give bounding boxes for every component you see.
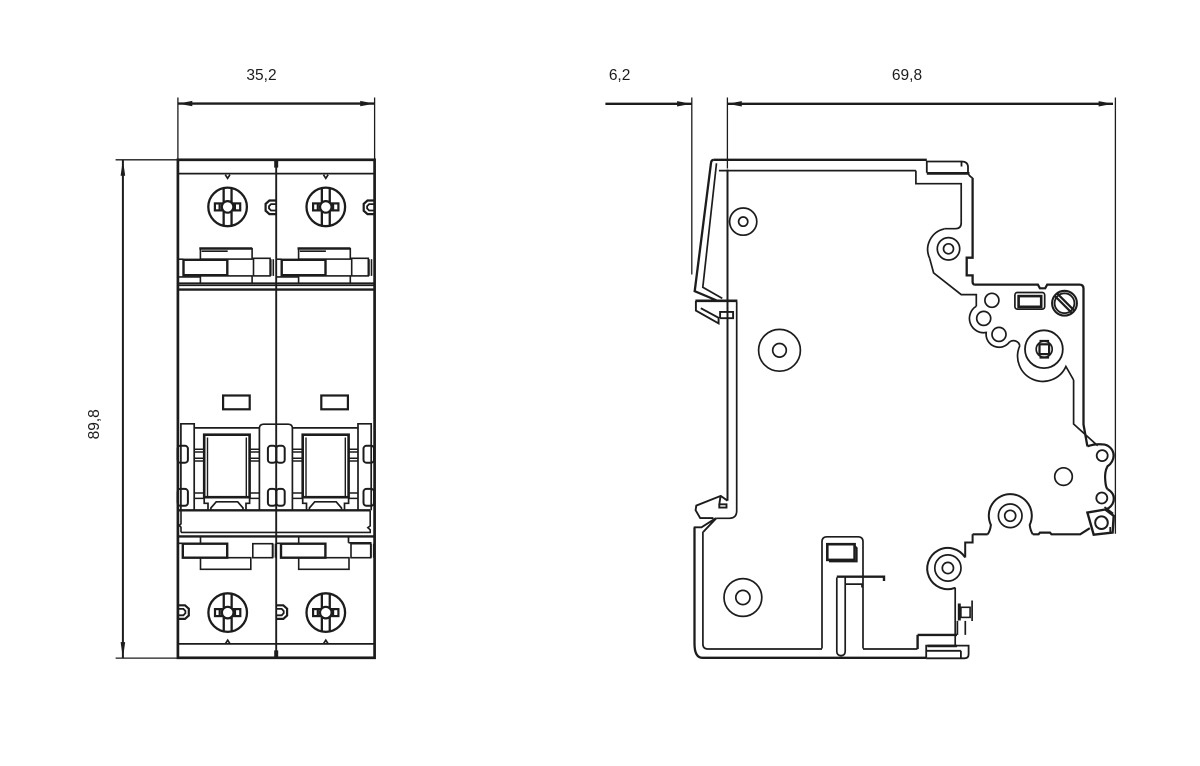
svg-text:89,8: 89,8 [86, 409, 103, 439]
svg-text:6,2: 6,2 [609, 67, 631, 84]
svg-text:35,2: 35,2 [246, 67, 276, 84]
svg-text:69,8: 69,8 [892, 67, 922, 84]
